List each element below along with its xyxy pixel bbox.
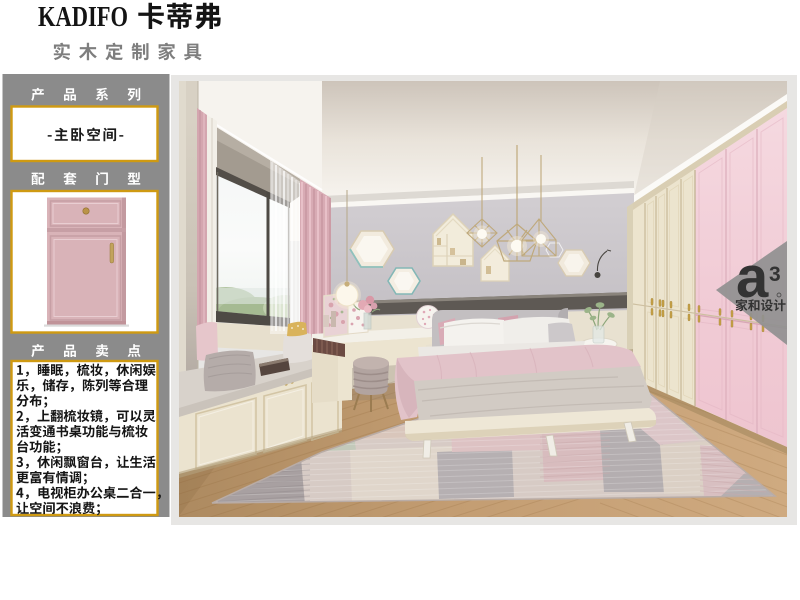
- svg-text:3: 3: [769, 263, 781, 286]
- svg-text:KADIFO: KADIFO: [38, 1, 128, 33]
